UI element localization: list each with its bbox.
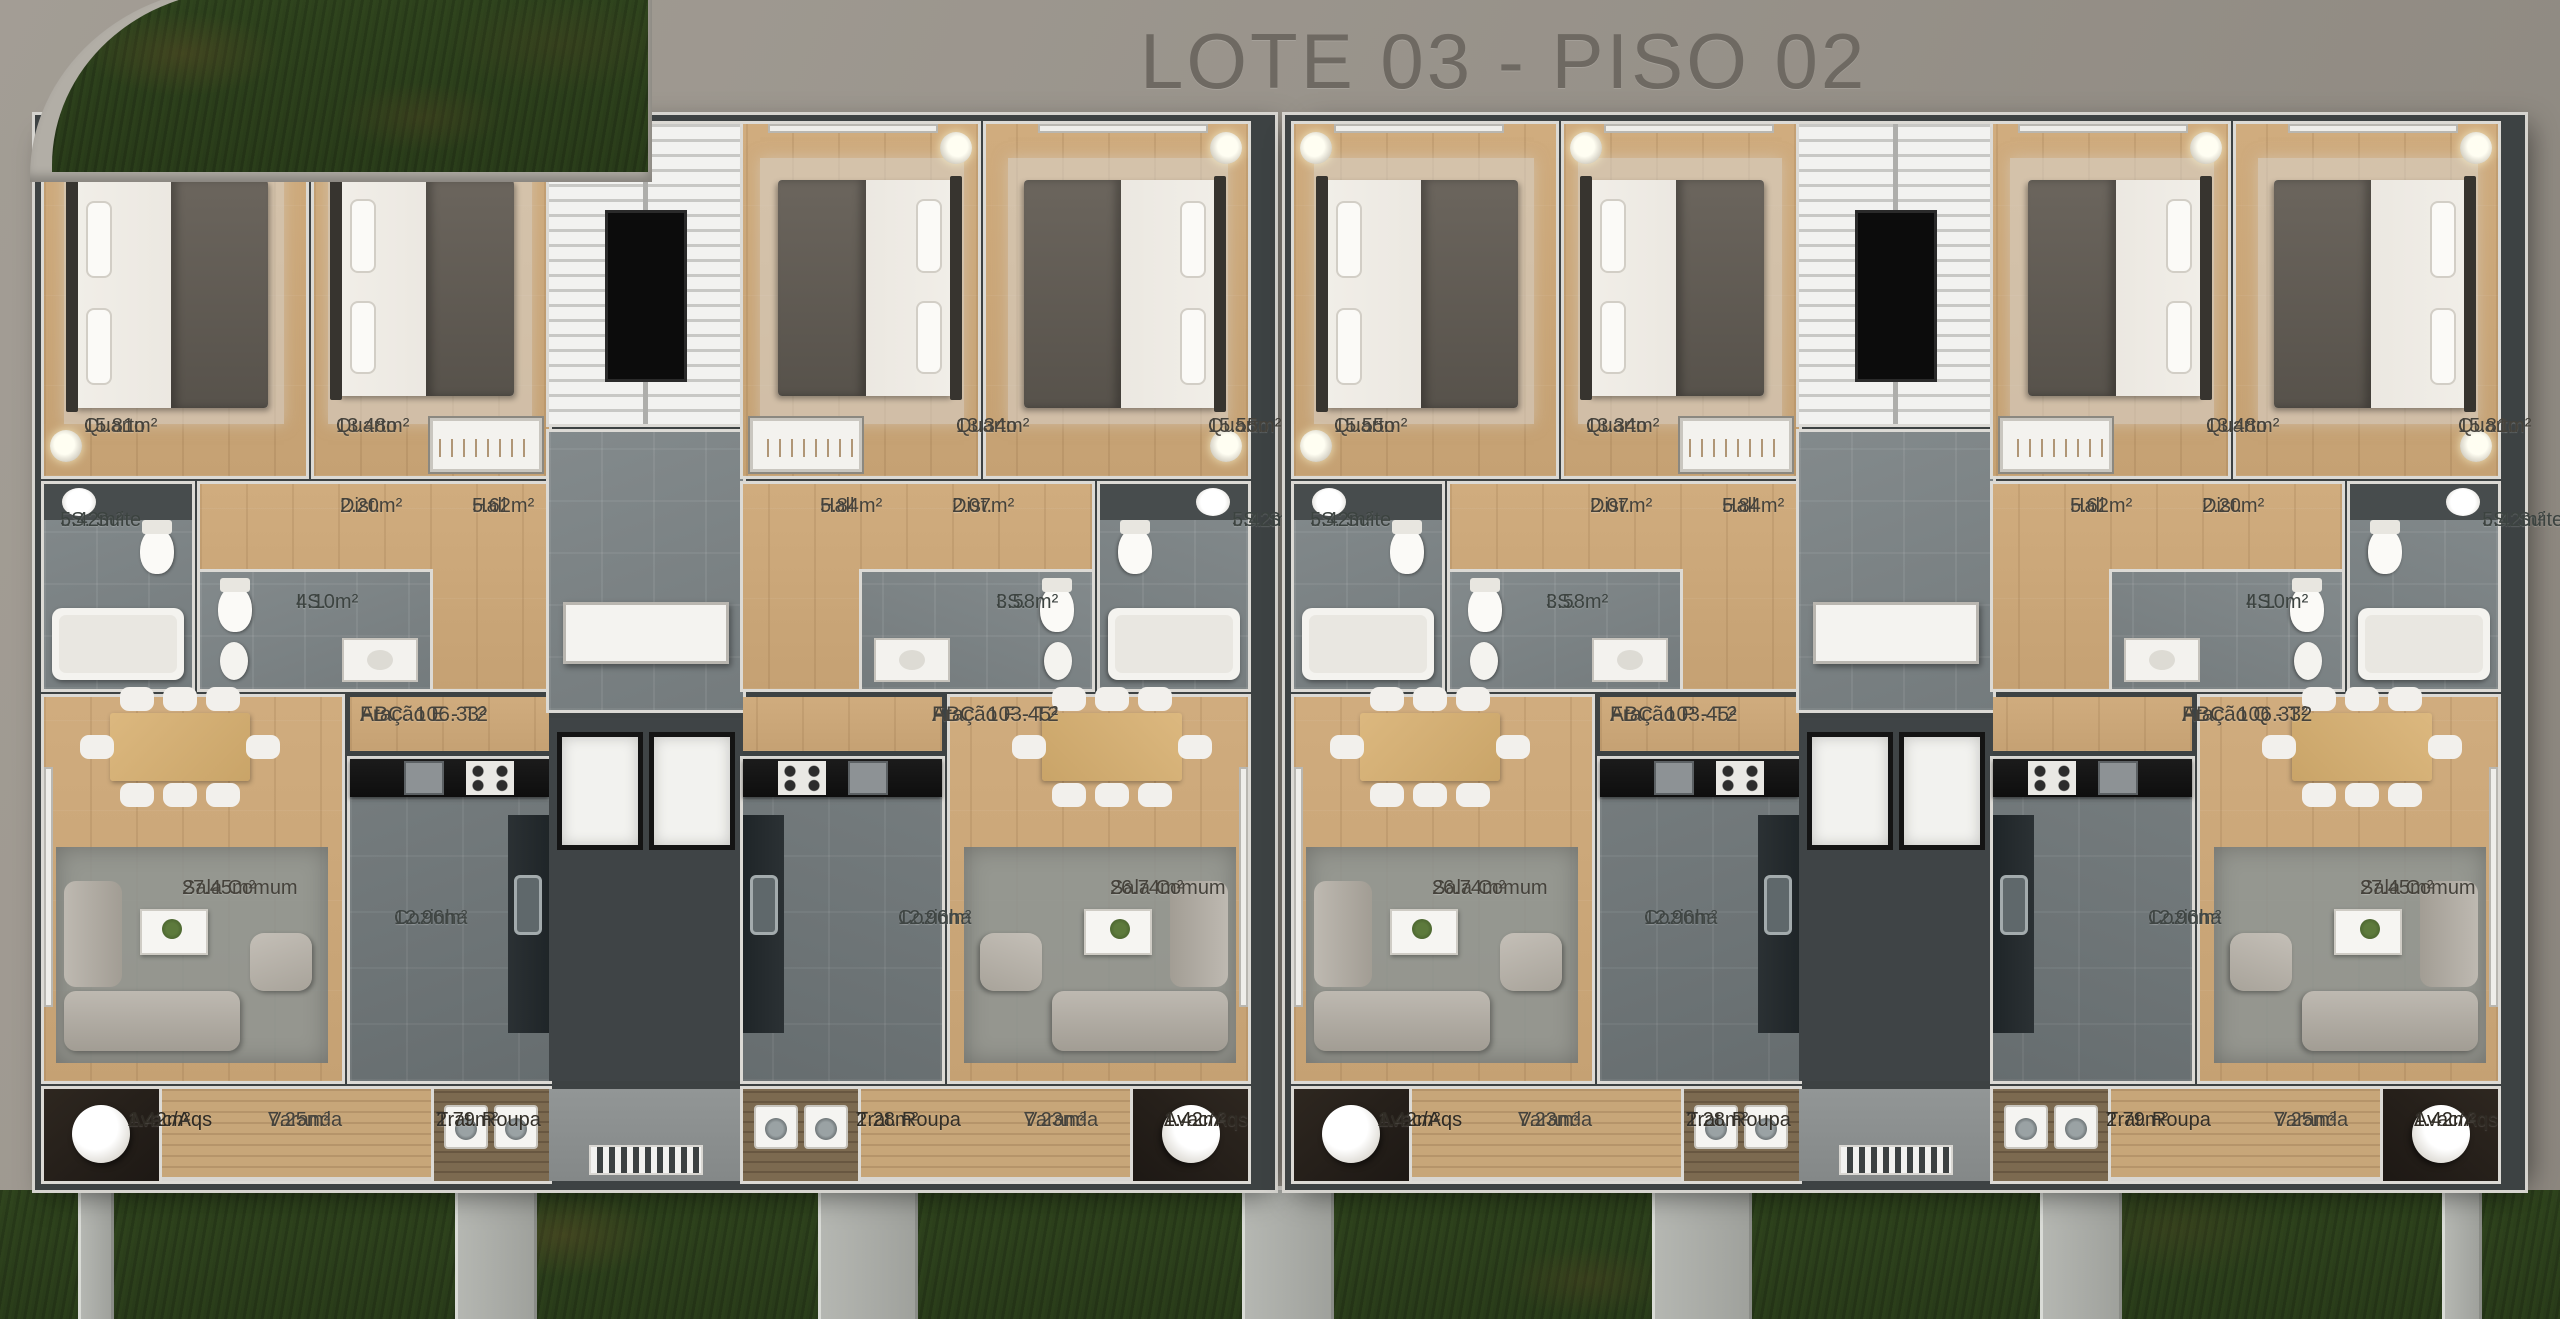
pillow bbox=[2166, 301, 2192, 374]
kitchen-counter bbox=[1993, 759, 2192, 797]
room-avac-aqs bbox=[1130, 1089, 1248, 1181]
room-label-is-suite-area: 5.42m² bbox=[1310, 508, 1372, 532]
walkway bbox=[78, 1190, 114, 1319]
room-label-sala-comum-area: 27.45m² bbox=[2360, 876, 2433, 900]
toilet bbox=[2368, 528, 2402, 574]
apartment-unit-F: Quarto15.55m²Quarto13.34m²I.S. Suite5.42… bbox=[743, 124, 1248, 1181]
headboard bbox=[330, 176, 342, 400]
room-label-is-area: 3.58m² bbox=[1546, 590, 1608, 614]
bidet bbox=[2294, 642, 2322, 680]
room-avac-aqs bbox=[1294, 1089, 1412, 1181]
stair-landing bbox=[549, 432, 743, 710]
room-trat-roupa bbox=[743, 1089, 858, 1181]
walkway bbox=[818, 1190, 918, 1319]
room-label-is-area: 4.10m² bbox=[296, 590, 358, 614]
dining-chairs bbox=[1370, 687, 1404, 711]
pillow bbox=[1336, 201, 1362, 279]
bed bbox=[74, 180, 268, 408]
pillow bbox=[1336, 308, 1362, 386]
kitchen-sink bbox=[1764, 875, 1792, 935]
room-avac-aqs bbox=[2380, 1089, 2498, 1181]
oven bbox=[404, 761, 444, 795]
room-label-quarto-area: 13.34m² bbox=[956, 414, 1029, 438]
pillow bbox=[916, 301, 942, 374]
stair-void bbox=[1855, 210, 1937, 382]
toilet bbox=[1468, 586, 1502, 632]
pillow bbox=[1180, 308, 1206, 386]
sofa bbox=[64, 881, 122, 987]
room-label-varanda-area: 7.25m² bbox=[268, 1108, 330, 1132]
bed bbox=[1588, 180, 1764, 396]
building-right: Quarto15.55m²Quarto13.34m²I.S. Suite5.42… bbox=[1285, 115, 2525, 1190]
dining-set bbox=[1360, 713, 1500, 781]
room-label-trat-roupa-area: 2.28m² bbox=[1686, 1108, 1748, 1132]
kitchen-counter bbox=[350, 759, 549, 797]
blanket bbox=[426, 180, 514, 396]
window bbox=[2489, 767, 2498, 1007]
pillow bbox=[2166, 199, 2192, 272]
sofa bbox=[1052, 991, 1228, 1051]
vanity bbox=[2124, 638, 2200, 682]
bathtub bbox=[52, 608, 184, 680]
plant bbox=[2360, 919, 2380, 939]
armchair bbox=[250, 933, 312, 991]
blanket bbox=[171, 180, 268, 408]
walkway bbox=[1242, 1190, 1334, 1319]
room-label-sala-comum-area: 27.45m² bbox=[182, 876, 255, 900]
room-label-quarto-area: 15.81m² bbox=[2458, 414, 2531, 438]
room-corridor bbox=[1993, 697, 2192, 751]
room-label-is-suite-area: 5.42m² bbox=[2482, 508, 2544, 532]
wardrobe bbox=[2000, 418, 2112, 472]
room-varanda bbox=[2108, 1089, 2380, 1181]
room-label-is-area: 3.58m² bbox=[996, 590, 1058, 614]
headboard bbox=[2200, 176, 2212, 400]
bathtub bbox=[2358, 608, 2490, 680]
pillow bbox=[2430, 201, 2456, 279]
room-label-quarto-area: 15.81m² bbox=[84, 414, 157, 438]
vanity bbox=[1592, 638, 1668, 682]
water-tank bbox=[1322, 1105, 1380, 1163]
plant bbox=[162, 919, 182, 939]
blanket bbox=[2274, 180, 2371, 408]
lamp-icon bbox=[1570, 132, 1602, 164]
window bbox=[768, 124, 938, 133]
armchair bbox=[980, 933, 1042, 991]
toilet bbox=[218, 586, 252, 632]
bed bbox=[778, 180, 954, 396]
window bbox=[1038, 124, 1208, 133]
bed bbox=[2274, 180, 2468, 408]
room-label-cozinha-area: 12.96m² bbox=[898, 906, 971, 930]
fraction-label-abc: ABC: 103.45² bbox=[932, 702, 1058, 728]
stove-icon bbox=[1716, 761, 1764, 795]
window bbox=[1239, 767, 1248, 1007]
walkway bbox=[1652, 1190, 1752, 1319]
skylight bbox=[1899, 732, 1985, 850]
room-label-quarto-area: 15.55m² bbox=[1208, 414, 1281, 438]
wardrobe bbox=[1680, 418, 1792, 472]
oven bbox=[1654, 761, 1694, 795]
bidet bbox=[220, 642, 248, 680]
fraction-label-abc: ABC: 103.45² bbox=[1610, 702, 1736, 728]
window bbox=[44, 767, 53, 1007]
room-corridor bbox=[743, 697, 942, 751]
grass-corner-topleft bbox=[52, 0, 648, 172]
wash-basin bbox=[1196, 488, 1230, 516]
room-label-hall-area: 5.84m² bbox=[820, 494, 882, 518]
headboard bbox=[1214, 176, 1226, 412]
room-varanda bbox=[1412, 1089, 1684, 1181]
stair-void bbox=[605, 210, 687, 382]
apartment-unit-P: Quarto15.55m²Quarto13.34m²I.S. Suite5.42… bbox=[1294, 124, 1799, 1181]
dining-table bbox=[110, 713, 250, 781]
plant bbox=[1412, 919, 1432, 939]
pillow bbox=[1600, 301, 1626, 374]
armchair bbox=[2230, 933, 2292, 991]
dining-table bbox=[1042, 713, 1182, 781]
bathtub bbox=[1302, 608, 1434, 680]
room-label-avac-aqs-area: 1.42m² bbox=[128, 1108, 190, 1132]
lamp-icon bbox=[2190, 132, 2222, 164]
room-label-cozinha-area: 12.96m² bbox=[2148, 906, 2221, 930]
bed bbox=[1324, 180, 1518, 408]
room-label-quarto-area: 13.34m² bbox=[1586, 414, 1659, 438]
skylight bbox=[649, 732, 735, 850]
room-label-trat-roupa-area: 2.28m² bbox=[856, 1108, 918, 1132]
walkway bbox=[2040, 1190, 2122, 1319]
oven bbox=[848, 761, 888, 795]
room-label-quarto-area: 13.48m² bbox=[2206, 414, 2279, 438]
washing-machine bbox=[804, 1105, 848, 1149]
pillow bbox=[916, 199, 942, 272]
lamp-icon bbox=[940, 132, 972, 164]
dining-table bbox=[2292, 713, 2432, 781]
core-walkway bbox=[549, 1089, 743, 1181]
armchair bbox=[1500, 933, 1562, 991]
dining-chairs bbox=[2388, 687, 2422, 711]
pillow bbox=[1600, 199, 1626, 272]
room-label-hall-area: 5.62m² bbox=[2070, 494, 2132, 518]
lamp-icon bbox=[1300, 132, 1332, 164]
washing-machine bbox=[754, 1105, 798, 1149]
blanket bbox=[1421, 180, 1518, 408]
lamp-icon bbox=[1300, 430, 1332, 462]
room-label-dist-area: 2.20m² bbox=[340, 494, 402, 518]
bidet bbox=[1470, 642, 1498, 680]
fraction-label-abc: ABC: 106.33² bbox=[360, 702, 486, 728]
room-label-varanda-area: 7.23m² bbox=[1518, 1108, 1580, 1132]
room-label-trat-roupa-area: 2.79m² bbox=[2106, 1108, 2168, 1132]
landing-cabinet bbox=[563, 602, 729, 664]
room-quarto bbox=[743, 124, 978, 476]
stove-icon bbox=[2028, 761, 2076, 795]
room-label-cozinha-area: 12.96m² bbox=[1644, 906, 1717, 930]
core-walkway bbox=[1799, 1089, 1993, 1181]
toilet bbox=[1390, 528, 1424, 574]
stair-landing bbox=[1799, 432, 1993, 710]
bidet bbox=[1044, 642, 1072, 680]
kitchen-counter bbox=[743, 759, 942, 797]
pillow bbox=[1180, 201, 1206, 279]
room-label-varanda-area: 7.23m² bbox=[1024, 1108, 1086, 1132]
building-left: Quarto15.81m²Quarto13.48m²I.S. Suite5.42… bbox=[35, 115, 1275, 1190]
window bbox=[2288, 124, 2458, 133]
room-label-hall-area: 5.62m² bbox=[472, 494, 534, 518]
washing-machine bbox=[2054, 1105, 2098, 1149]
room-label-trat-roupa-area: 2.79m² bbox=[436, 1108, 498, 1132]
sofa bbox=[2302, 991, 2478, 1051]
room-varanda bbox=[858, 1089, 1130, 1181]
pillow bbox=[86, 308, 112, 386]
room-trat-roupa bbox=[434, 1089, 549, 1181]
room-label-cozinha-area: 12.96m² bbox=[394, 906, 467, 930]
fraction-label-abc: ABC: 106.33² bbox=[2182, 702, 2308, 728]
sofa bbox=[1314, 881, 1372, 987]
window bbox=[2018, 124, 2188, 133]
pillow bbox=[350, 301, 376, 374]
dining-chairs bbox=[1138, 687, 1172, 711]
headboard bbox=[1316, 176, 1328, 412]
window bbox=[1294, 767, 1303, 1007]
room-label-quarto-area: 15.55m² bbox=[1334, 414, 1407, 438]
room-quarto bbox=[1993, 124, 2228, 476]
room-label-dist-area: 2.20m² bbox=[2202, 494, 2264, 518]
pillow bbox=[2430, 308, 2456, 386]
dining-table bbox=[1360, 713, 1500, 781]
room-trat-roupa bbox=[1684, 1089, 1799, 1181]
washing-machine bbox=[2004, 1105, 2048, 1149]
dining-set bbox=[1042, 713, 1182, 781]
vent-grille-icon bbox=[1839, 1145, 1953, 1175]
lamp-icon bbox=[50, 430, 82, 462]
site-plan: Quarto15.81m²Quarto13.48m²I.S. Suite5.42… bbox=[0, 0, 2560, 1319]
walkway bbox=[455, 1190, 537, 1319]
wardrobe bbox=[430, 418, 542, 472]
dining-set bbox=[2292, 713, 2432, 781]
vanity bbox=[874, 638, 950, 682]
room-trat-roupa bbox=[1993, 1089, 2108, 1181]
blanket bbox=[1676, 180, 1764, 396]
blanket bbox=[778, 180, 866, 396]
room-avac-aqs bbox=[44, 1089, 162, 1181]
lamp-icon bbox=[2460, 132, 2492, 164]
headboard bbox=[1580, 176, 1592, 400]
room-is-suite bbox=[1100, 484, 1248, 689]
toilet bbox=[1118, 528, 1152, 574]
headboard bbox=[2464, 176, 2476, 412]
plan-title: LOTE 03 - PISO 02 bbox=[1140, 16, 1900, 107]
bathtub bbox=[1108, 608, 1240, 680]
room-label-avac-aqs-area: 1.42m² bbox=[2414, 1108, 2476, 1132]
kitchen-sink bbox=[2000, 875, 2028, 935]
blanket bbox=[2028, 180, 2116, 396]
headboard bbox=[66, 176, 78, 412]
room-label-avac-aqs-area: 1.42m² bbox=[1164, 1108, 1226, 1132]
room-label-hall-area: 5.84m² bbox=[1722, 494, 1784, 518]
room-label-dist-area: 2.07m² bbox=[952, 494, 1014, 518]
wash-basin bbox=[2446, 488, 2480, 516]
pillow bbox=[350, 199, 376, 272]
oven bbox=[2098, 761, 2138, 795]
room-label-is-suite-area: 5.42m² bbox=[60, 508, 122, 532]
dining-set bbox=[110, 713, 250, 781]
stove-icon bbox=[778, 761, 826, 795]
window bbox=[1604, 124, 1774, 133]
blanket bbox=[1024, 180, 1121, 408]
room-label-is-area: 4.10m² bbox=[2246, 590, 2308, 614]
wardrobe bbox=[750, 418, 862, 472]
kitchen-sink bbox=[514, 875, 542, 935]
bed bbox=[2028, 180, 2204, 396]
room-label-varanda-area: 7.25m² bbox=[2274, 1108, 2336, 1132]
vent-grille-icon bbox=[589, 1145, 703, 1175]
bed bbox=[338, 180, 514, 396]
window bbox=[1334, 124, 1504, 133]
apartment-unit-Q: Quarto15.81m²Quarto13.48m²I.S. Suite5.42… bbox=[1993, 124, 2498, 1181]
kitchen-counter bbox=[1600, 759, 1799, 797]
dining-chairs bbox=[120, 687, 154, 711]
headboard bbox=[950, 176, 962, 400]
kitchen-sink bbox=[750, 875, 778, 935]
walkway bbox=[2442, 1190, 2482, 1319]
room-varanda bbox=[162, 1089, 434, 1181]
apartment-unit-E: Quarto15.81m²Quarto13.48m²I.S. Suite5.42… bbox=[44, 124, 549, 1181]
room-is-suite bbox=[2350, 484, 2498, 689]
stove-icon bbox=[466, 761, 514, 795]
room-label-sala-comum-area: 26.74m² bbox=[1432, 876, 1505, 900]
pillow bbox=[86, 201, 112, 279]
room-label-quarto-area: 13.48m² bbox=[336, 414, 409, 438]
skylight bbox=[1807, 732, 1893, 850]
room-label-sala-comum-area: 26.74m² bbox=[1110, 876, 1183, 900]
stair-core bbox=[549, 124, 743, 1181]
skylight bbox=[557, 732, 643, 850]
sofa bbox=[1314, 991, 1490, 1051]
bed bbox=[1024, 180, 1218, 408]
sofa bbox=[64, 991, 240, 1051]
room-label-dist-area: 2.07m² bbox=[1590, 494, 1652, 518]
water-tank bbox=[72, 1105, 130, 1163]
landing-cabinet bbox=[1813, 602, 1979, 664]
lamp-icon bbox=[1210, 132, 1242, 164]
plant bbox=[1110, 919, 1130, 939]
room-label-avac-aqs-area: 1.42m² bbox=[1378, 1108, 1440, 1132]
vanity bbox=[342, 638, 418, 682]
stair-core bbox=[1799, 124, 1993, 1181]
toilet bbox=[140, 528, 174, 574]
